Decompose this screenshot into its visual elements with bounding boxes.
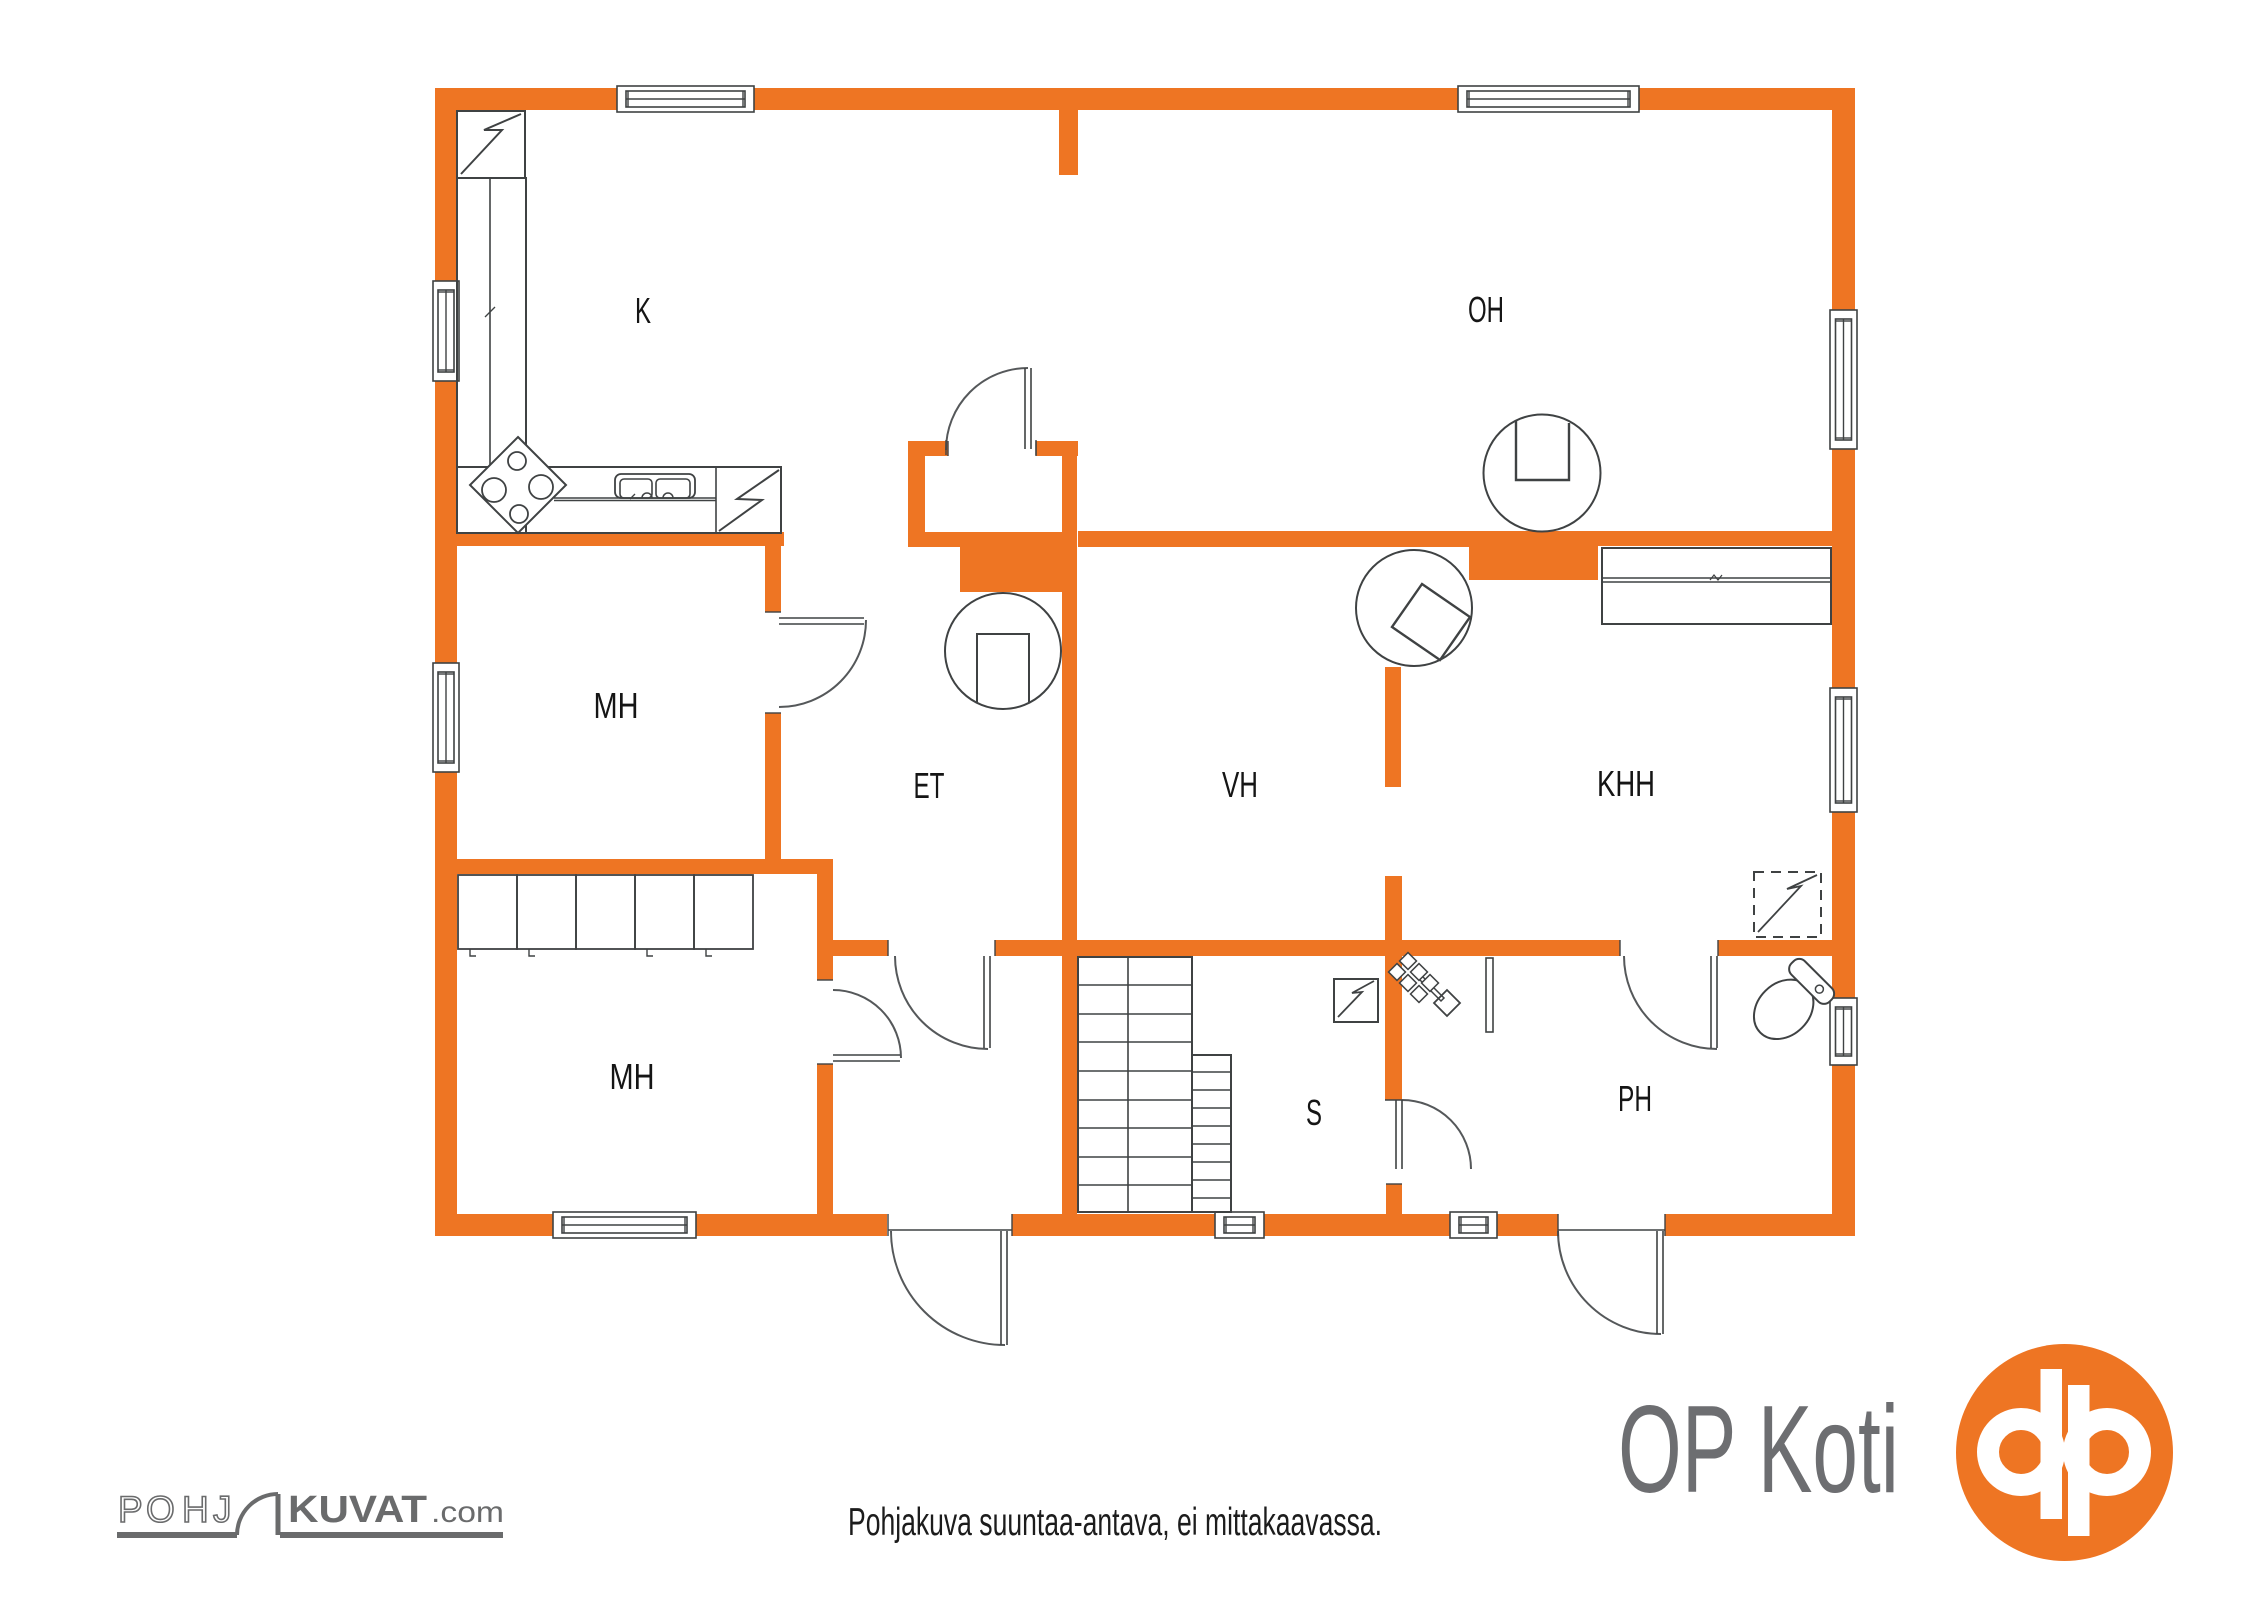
svg-text:OP Koti: OP Koti [1618,1381,1899,1519]
svg-text:MH: MH [610,1056,655,1097]
svg-text:J: J [213,1489,232,1530]
svg-text:K: K [635,290,651,331]
svg-text:P: P [118,1489,143,1530]
svg-text:VH: VH [1222,764,1258,805]
svg-text:OH: OH [1468,289,1504,330]
svg-text:ET: ET [914,765,945,806]
svg-text:KHH: KHH [1597,763,1655,804]
svg-text:S: S [1306,1092,1322,1133]
svg-text:MH: MH [594,685,639,726]
svg-text:H: H [182,1489,209,1530]
svg-text:PH: PH [1618,1078,1652,1119]
svg-text:KUVAT: KUVAT [288,1489,427,1531]
svg-text:Pohjakuva suuntaa-antava, ei m: Pohjakuva suuntaa-antava, ei mittakaavas… [848,1501,1382,1544]
svg-text:.com: .com [431,1496,504,1529]
svg-text:O: O [146,1489,175,1530]
